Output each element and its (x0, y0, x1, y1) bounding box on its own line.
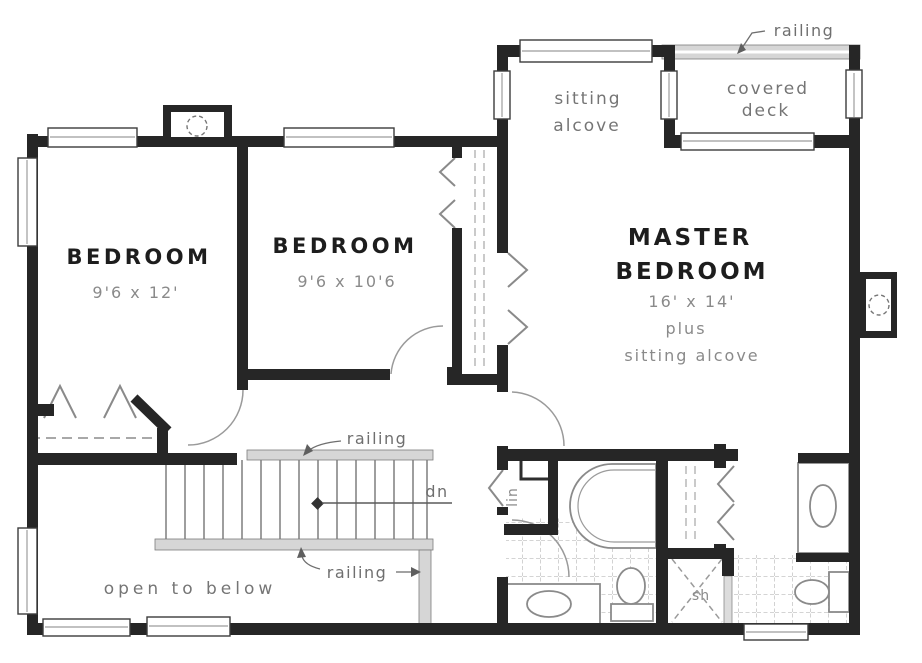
bedroom1-door-arc (188, 390, 243, 445)
master-label-line2: BEDROOM (615, 259, 768, 285)
main-bath-toilet-bowl (617, 568, 645, 604)
wall-vanity-stub (796, 553, 849, 562)
wall-master-west-e (497, 577, 508, 634)
wall-bath-divider (656, 449, 668, 635)
wall-master-bath-north (798, 453, 852, 463)
stair-railing-top (247, 450, 433, 460)
open-to-below-label: open to below (104, 579, 277, 599)
bedroom2-closet-bifold-icon (440, 158, 455, 186)
wall-shower-right (722, 548, 734, 576)
stairs-railing-bottom-label: railing (327, 563, 388, 582)
master-bath-toilet-bowl (795, 580, 829, 604)
stair-treads (166, 460, 427, 539)
chimney-flue-icon (187, 116, 207, 136)
linen-closet-bifold-icon (489, 470, 503, 506)
deck-railing (662, 45, 860, 59)
chimney-flue-icon (869, 295, 889, 315)
windows (18, 40, 862, 640)
wall-closet-west-upper (452, 140, 462, 158)
railing-top-leader (308, 441, 341, 451)
master-closet-bifold-icon (508, 310, 527, 344)
main-bath-sink (527, 591, 571, 617)
bedroom2-dims: 9'6 x 10'6 (297, 272, 396, 291)
shower-door (724, 576, 732, 624)
wall-linen-south (504, 524, 558, 535)
wall-bedroom2-south (237, 369, 390, 380)
master-label-line1: MASTER (628, 225, 752, 251)
master-extra: sitting alcove (624, 346, 759, 365)
down-arrow-dot (311, 497, 324, 510)
wall-shower-top (658, 548, 728, 559)
wall-closet-stub (38, 404, 54, 416)
master-plus: plus (665, 319, 706, 338)
deck-label-line2: deck (742, 101, 790, 121)
bath-closet-bifold-icon (718, 466, 734, 502)
bedroom2-door-arc (391, 326, 443, 374)
hall-closet-shelf-dashes (475, 150, 484, 368)
linen-shaft-box (521, 459, 550, 479)
wall-closet-west-lower (452, 228, 462, 374)
wall-bath-north (504, 449, 738, 461)
wall-closet-diagonal (134, 398, 168, 431)
railing-bottom-leader (302, 556, 320, 569)
deck-label-line1: covered (727, 79, 809, 99)
floor-plan-page: BEDROOM 9'6 x 12' BEDROOM 9'6 x 10'6 MAS… (0, 0, 922, 663)
stair-railing-bottom (155, 539, 433, 550)
bath-closet-shelf-dashes (686, 466, 695, 540)
wall-bedroom-divider (237, 140, 248, 390)
shower-label: sh (692, 588, 710, 604)
master-dims: 16' x 14' (648, 292, 735, 311)
bedroom2-closet-bifold-icon (440, 200, 455, 228)
wall-linen-east (548, 461, 558, 524)
stair-railing-side (419, 550, 431, 624)
bedroom2-label: BEDROOM (272, 234, 417, 258)
wall-master-west-d (497, 507, 508, 515)
wall-exterior-right (849, 45, 860, 635)
floor-plan-canvas: BEDROOM 9'6 x 12' BEDROOM 9'6 x 10'6 MAS… (0, 0, 922, 663)
down-label: dn (425, 482, 448, 501)
master-closet-bifold-icon (508, 253, 527, 287)
bedroom1-label: BEDROOM (66, 245, 211, 269)
bathtub (570, 464, 656, 548)
bath-closet-bifold-icon (718, 504, 734, 540)
wall-stair-room-north (27, 453, 237, 465)
alcove-label-line2: alcove (553, 116, 620, 136)
master-bath-sink (810, 485, 836, 527)
alcove-label-line1: sitting (554, 89, 621, 109)
linen-label: lin (505, 487, 521, 507)
bedroom1-dims: 9'6 x 12' (92, 283, 179, 302)
deck-railing-label: railing (774, 21, 835, 40)
wall-master-west-b (497, 345, 508, 392)
master-door-arc (512, 392, 564, 446)
wall-strip-east-top (714, 444, 726, 468)
stairs-railing-top-label: railing (347, 429, 408, 448)
main-bath-toilet-tank (611, 604, 653, 621)
master-bath-toilet-tank (829, 572, 849, 612)
